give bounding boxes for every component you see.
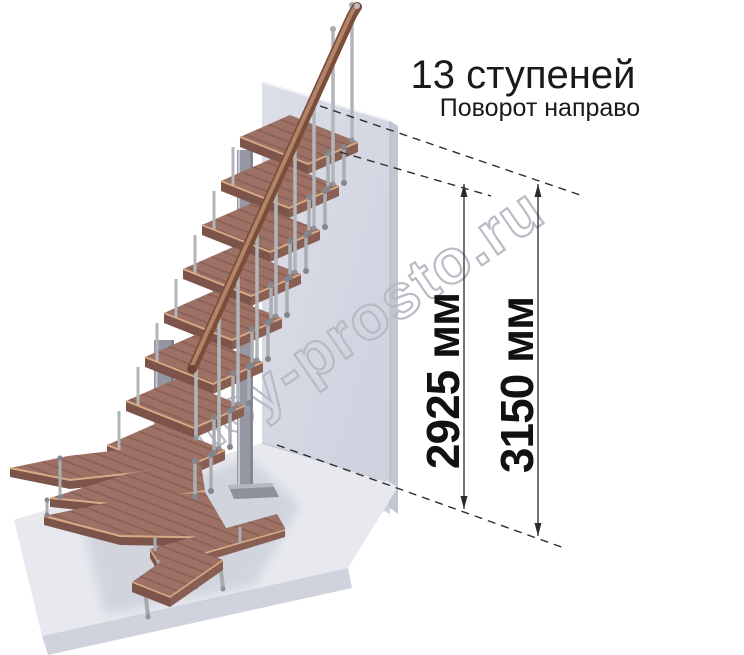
dimension-label-2925: 2925 мм — [417, 293, 469, 469]
dimension-label-3150: 3150 мм — [491, 297, 543, 473]
staircase-diagram: lestnicy-prosto.ru — [0, 0, 744, 655]
page-subtitle: Поворот направо — [440, 94, 640, 122]
fan-baluster — [194, 366, 199, 441]
staircase-diagram-page: lestnicy-prosto.ru — [0, 0, 744, 655]
page-title: 13 ступеней — [411, 53, 636, 97]
